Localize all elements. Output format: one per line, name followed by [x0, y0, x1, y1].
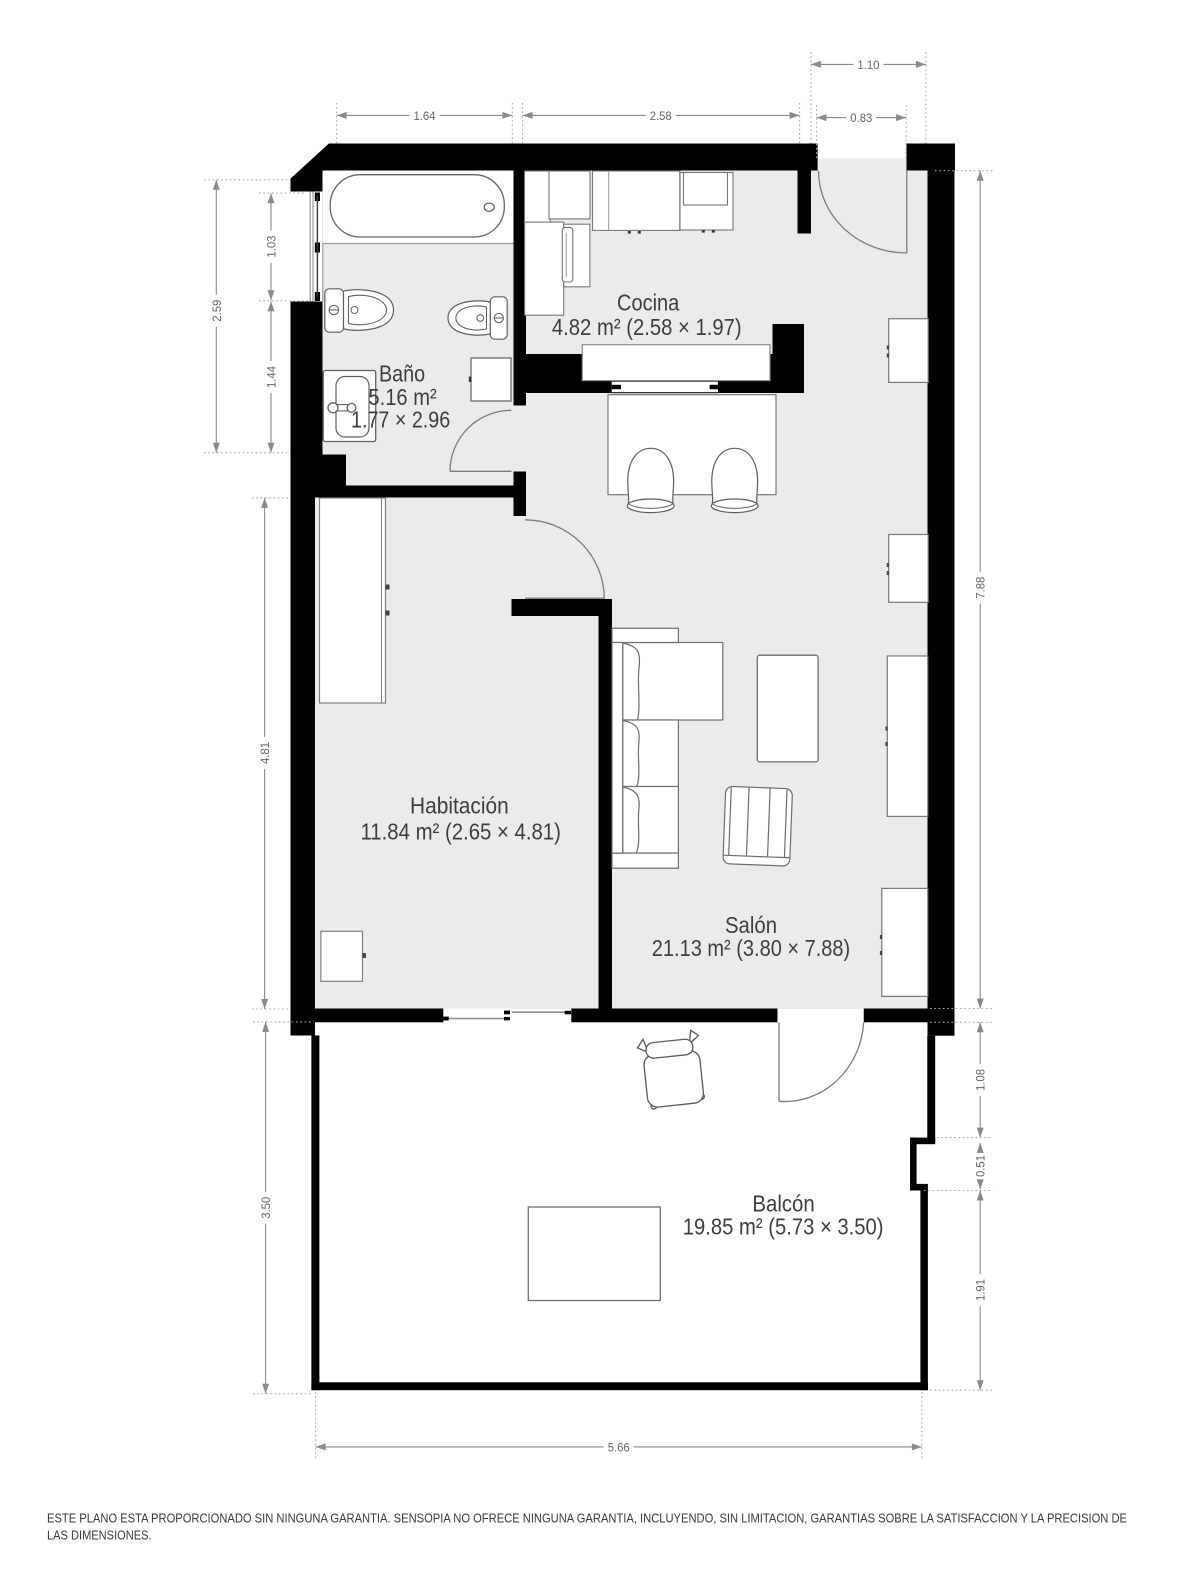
svg-text:1.91: 1.91	[974, 1279, 988, 1301]
svg-text:7.88: 7.88	[974, 576, 988, 598]
svg-text:4.82 m² (2.58 × 1.97): 4.82 m² (2.58 × 1.97)	[552, 314, 742, 340]
svg-text:1.08: 1.08	[974, 1069, 988, 1091]
svg-text:0.51: 0.51	[974, 1155, 988, 1177]
svg-text:3.50: 3.50	[259, 1196, 273, 1218]
svg-text:19.85 m² (5.73 × 3.50): 19.85 m² (5.73 × 3.50)	[683, 1214, 884, 1240]
svg-text:11.84 m² (2.65 × 4.81): 11.84 m² (2.65 × 4.81)	[361, 819, 561, 845]
svg-text:1.44: 1.44	[265, 366, 279, 388]
svg-text:1.10: 1.10	[857, 58, 879, 72]
svg-text:LAS DIMENSIONES.: LAS DIMENSIONES.	[47, 1529, 152, 1543]
svg-text:1.64: 1.64	[414, 109, 436, 123]
svg-text:2.59: 2.59	[210, 299, 224, 321]
svg-text:1.03: 1.03	[265, 235, 279, 257]
svg-text:Salón: Salón	[725, 912, 777, 938]
svg-text:2.58: 2.58	[650, 109, 672, 123]
svg-text:Baño: Baño	[379, 360, 425, 386]
svg-text:21.13 m² (3.80 × 7.88): 21.13 m² (3.80 × 7.88)	[652, 935, 850, 961]
svg-text:0.83: 0.83	[850, 111, 872, 125]
svg-text:Habitación: Habitación	[410, 793, 509, 819]
svg-text:5.66: 5.66	[608, 1441, 630, 1455]
svg-text:Cocina: Cocina	[617, 290, 679, 316]
svg-text:4.81: 4.81	[258, 742, 272, 764]
svg-text:ESTE PLANO ESTA PROPORCIONADO: ESTE PLANO ESTA PROPORCIONADO SIN NINGUN…	[47, 1512, 1127, 1526]
svg-text:1.77 × 2.96: 1.77 × 2.96	[351, 406, 450, 432]
